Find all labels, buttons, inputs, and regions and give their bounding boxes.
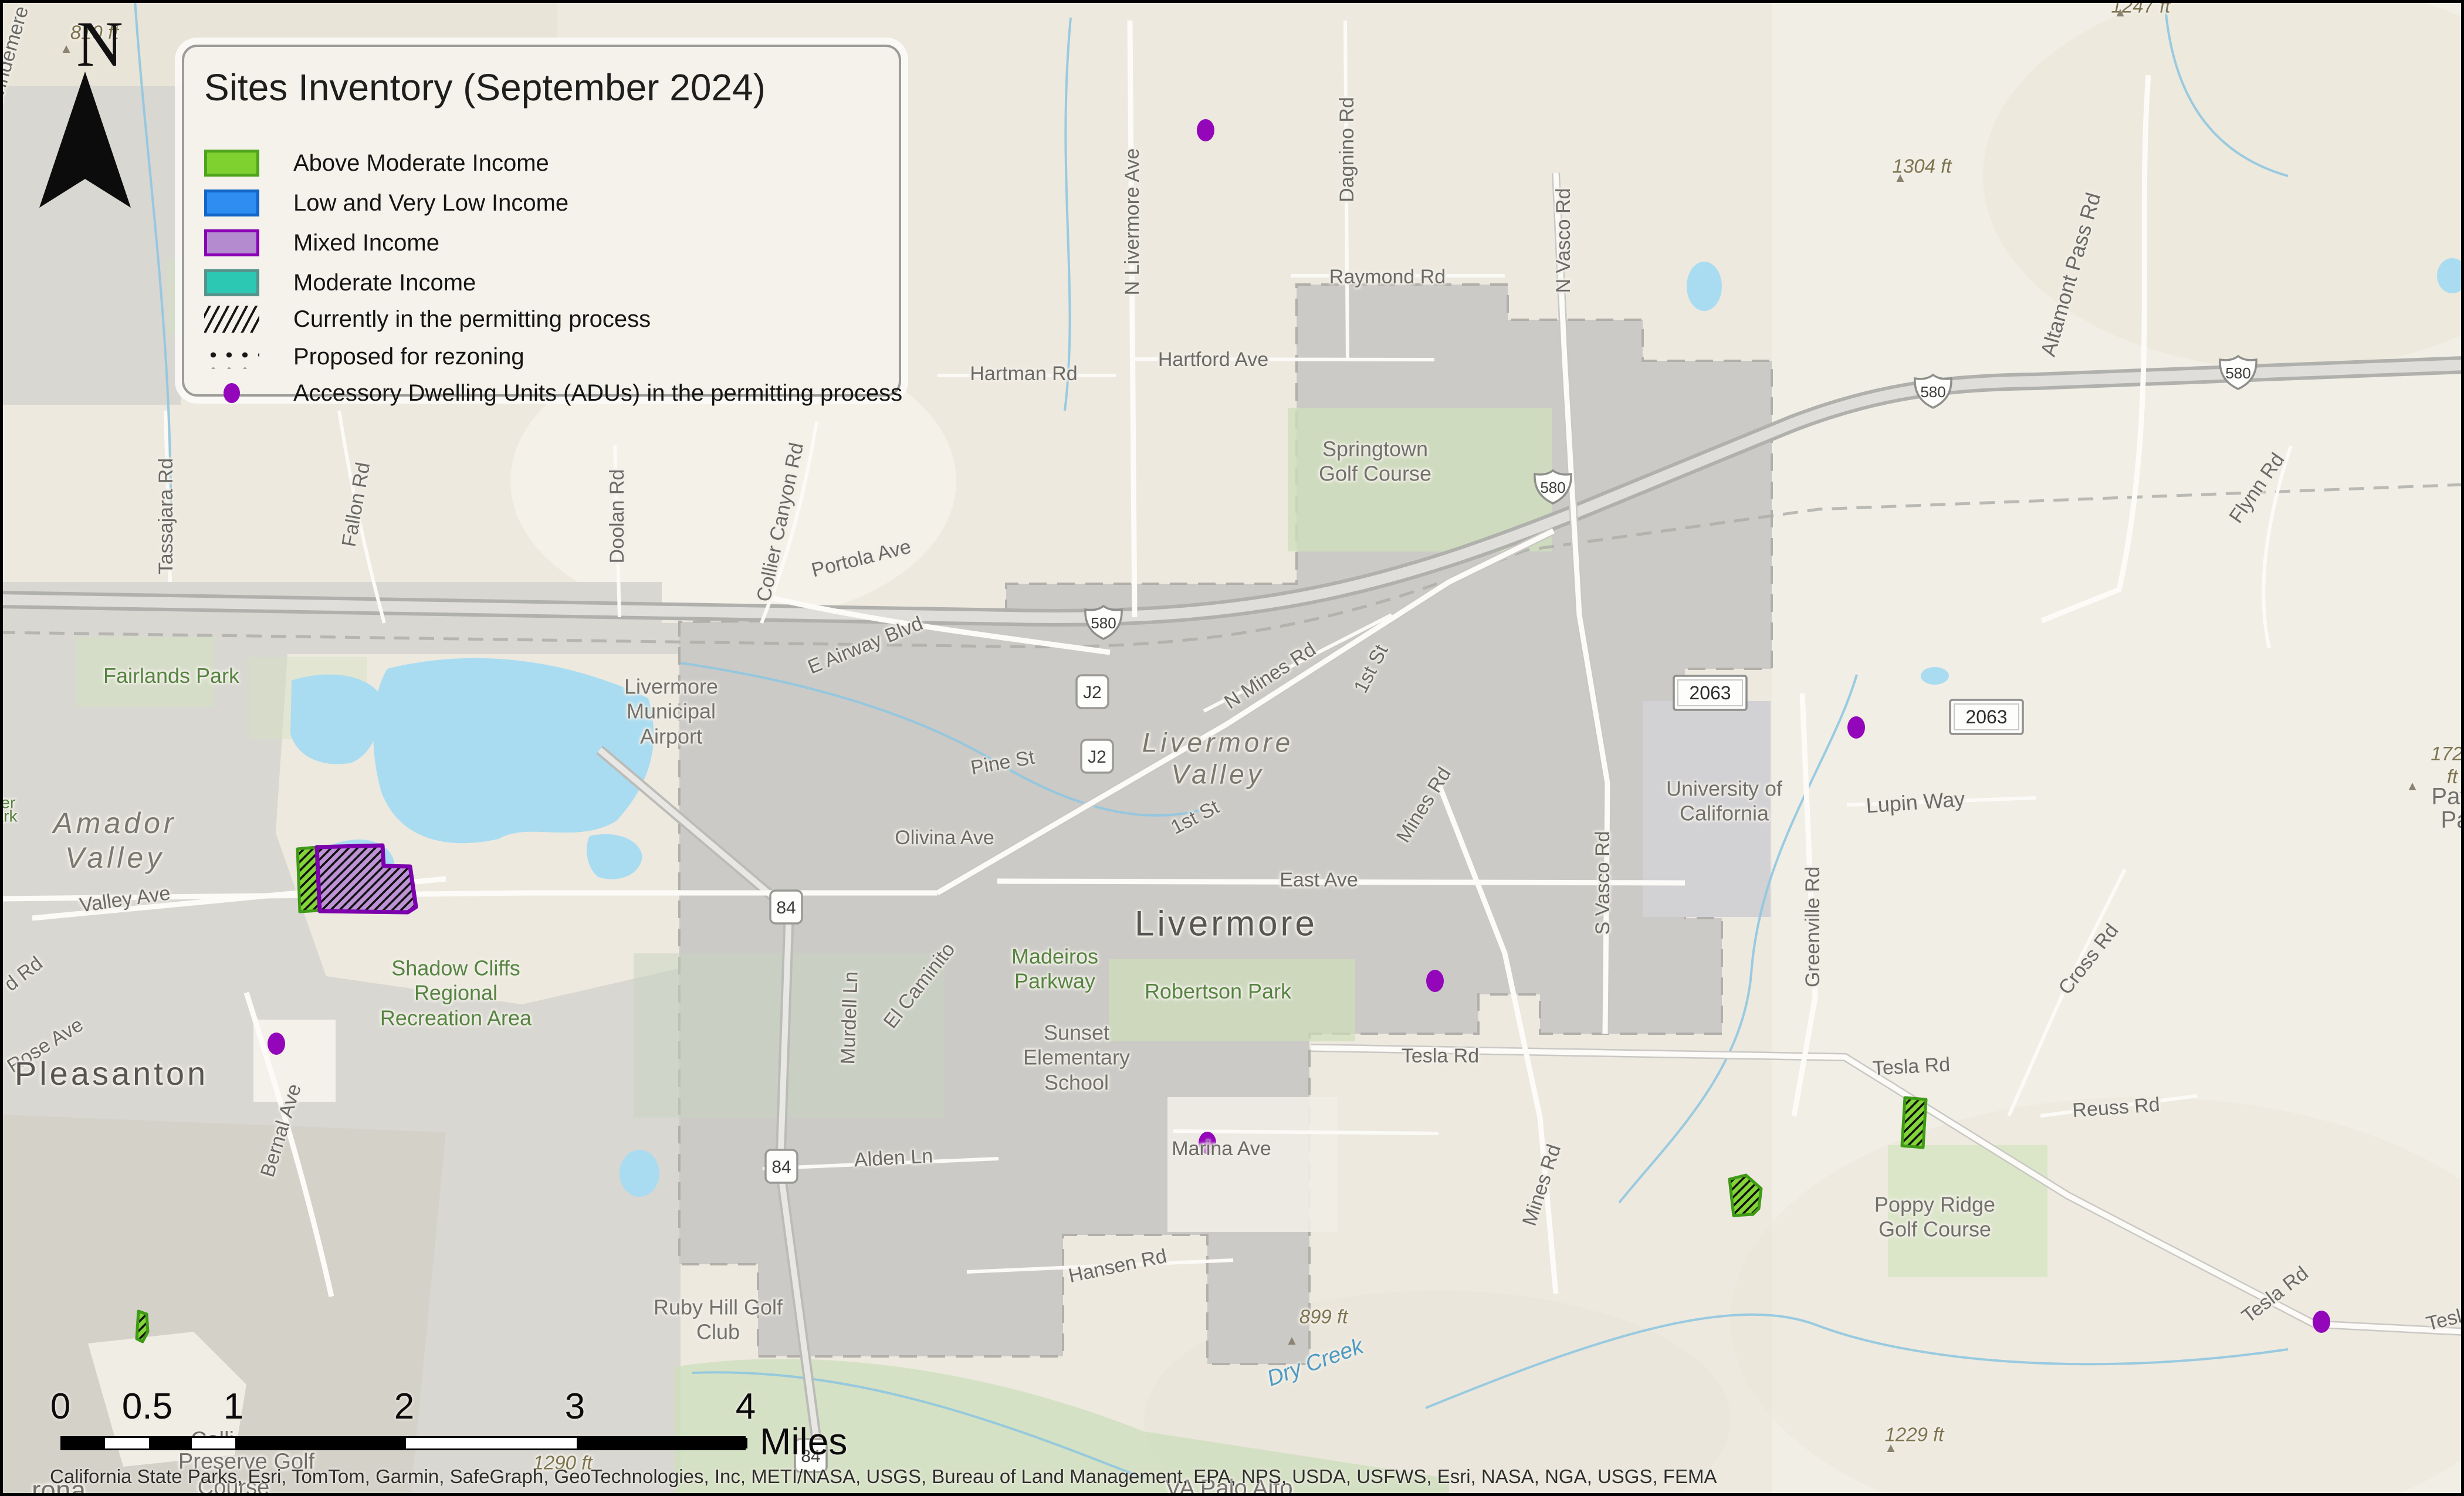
- route-shield-2063: 2063: [1674, 676, 1747, 710]
- svg-text:84: 84: [776, 898, 796, 918]
- svg-text:84: 84: [771, 1157, 791, 1177]
- adu-dot[interactable]: [2313, 1311, 2330, 1333]
- legend-item-label: Moderate Income: [293, 270, 476, 296]
- legend-title: Sites Inventory (September 2024): [204, 66, 766, 109]
- above-moderate-income-swatch: [204, 150, 259, 177]
- north-letter: N: [32, 12, 167, 76]
- route-shield-84: 84: [770, 891, 802, 923]
- legend-item-label: Above Moderate Income: [293, 150, 549, 177]
- attribution-text: California State Parks, Esri, TomTom, Ga…: [50, 1465, 1717, 1488]
- legend-item-moderate-income: Moderate Income: [204, 268, 476, 298]
- north-arrow: N: [32, 12, 167, 212]
- route-shield-84: 84: [766, 1150, 797, 1183]
- legend-item-proposed-rezoning: Proposed for rezoning: [204, 341, 524, 372]
- legend-item-label: Accessory Dwelling Units (ADUs) in the p…: [293, 380, 902, 407]
- svg-text:J2: J2: [1088, 747, 1106, 767]
- dots-pattern-swatch: [204, 345, 259, 368]
- svg-text:J2: J2: [1083, 683, 1102, 702]
- route-shield-2063: 2063: [1950, 700, 2023, 734]
- site-polygon-green[interactable]: [1902, 1098, 1926, 1148]
- legend-item-label: Low and Very Low Income: [293, 190, 568, 216]
- svg-text:2063: 2063: [1689, 682, 1731, 703]
- site-polygon-green[interactable]: [137, 1311, 148, 1342]
- adu-dot[interactable]: [268, 1033, 285, 1055]
- north-arrow-icon: [32, 72, 167, 212]
- legend-item-mixed-income: Mixed Income: [204, 228, 439, 258]
- legend-item-label: Mixed Income: [293, 230, 439, 256]
- adu-dot-swatch: [204, 380, 259, 407]
- svg-text:580: 580: [1920, 383, 1945, 401]
- route-shield-J2: J2: [1081, 740, 1113, 773]
- low-very-low-income-swatch: [204, 189, 259, 216]
- mixed-income-swatch: [204, 229, 259, 256]
- legend-item-label: Proposed for rezoning: [293, 344, 524, 370]
- svg-text:84: 84: [801, 1447, 820, 1466]
- adu-dot[interactable]: [1426, 970, 1444, 992]
- legend-item-label: Currently in the permitting process: [293, 306, 651, 333]
- legend-panel: Sites Inventory (September 2024) Above M…: [182, 45, 901, 397]
- svg-text:580: 580: [1540, 479, 1565, 496]
- svg-text:2063: 2063: [1965, 706, 2007, 727]
- legend-item-low-very-low-income: Low and Very Low Income: [204, 188, 568, 218]
- legend-item-adu: Accessory Dwelling Units (ADUs) in the p…: [204, 378, 902, 408]
- svg-text:580: 580: [1091, 614, 1116, 632]
- route-shield-J2: J2: [1077, 675, 1108, 708]
- legend-item-above-moderate-income: Above Moderate Income: [204, 148, 549, 178]
- adu-dot[interactable]: [1847, 716, 1865, 739]
- legend-item-permitting-process: Currently in the permitting process: [204, 304, 651, 334]
- adu-dot[interactable]: [1197, 119, 1214, 141]
- hatch-pattern-swatch: [204, 306, 259, 333]
- svg-text:580: 580: [2225, 364, 2250, 382]
- adu-dot[interactable]: [1199, 1132, 1216, 1154]
- map-canvas[interactable]: 580580580580J2J220632063848484 Tassajara…: [0, 0, 2464, 1496]
- moderate-income-swatch: [204, 269, 259, 296]
